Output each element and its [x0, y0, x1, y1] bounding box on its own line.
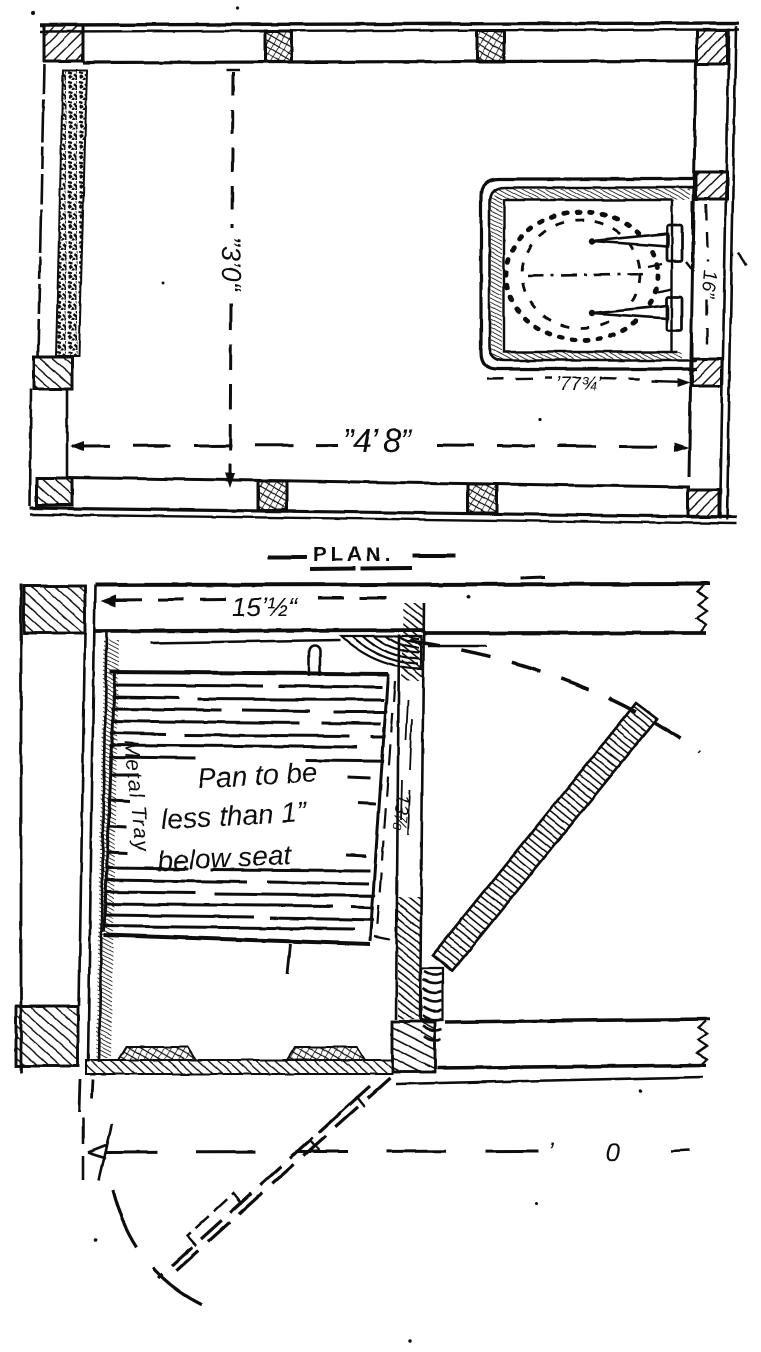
svg-text:”4’ 8”: ”4’ 8” — [343, 422, 413, 459]
svg-text:13⅞: 13⅞ — [388, 792, 413, 831]
svg-text:’: ’ — [548, 1137, 555, 1167]
svg-text:”3’0“: ”3’0“ — [216, 237, 246, 293]
svg-text:Pan to be: Pan to be — [197, 757, 318, 794]
svg-text:16”: 16” — [696, 270, 719, 301]
svg-text:0: 0 — [605, 1137, 620, 1167]
svg-text:’77¾’: ’77¾’ — [556, 374, 602, 395]
svg-text:15’½“: 15’½“ — [232, 592, 298, 622]
svg-text:PLAN.: PLAN. — [313, 543, 395, 566]
svg-text:less than 1”: less than 1” — [161, 796, 309, 835]
